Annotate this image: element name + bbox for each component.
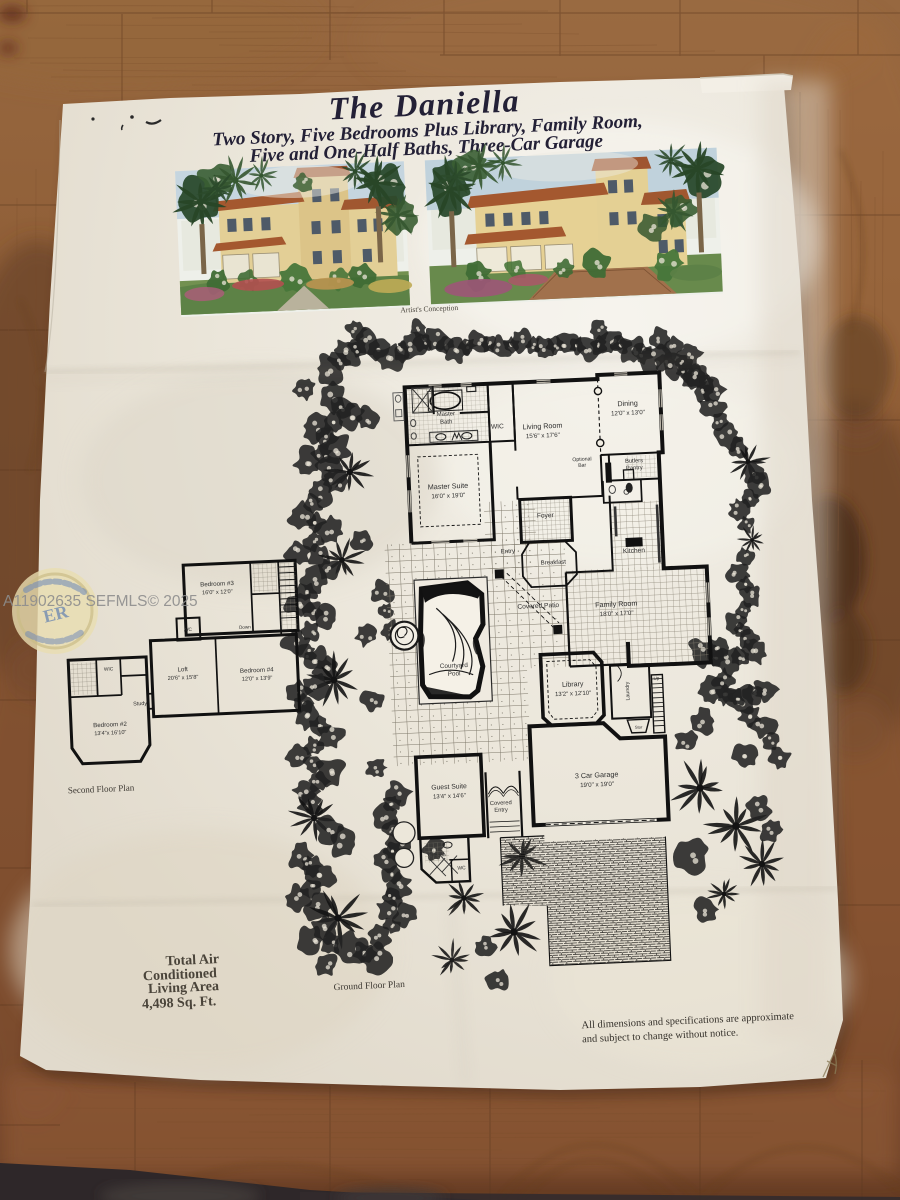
svg-text:Master Suite: Master Suite — [428, 481, 469, 492]
svg-text:Family Room: Family Room — [595, 599, 638, 610]
svg-text:Living Room: Living Room — [522, 421, 562, 432]
svg-text:Dining: Dining — [617, 398, 638, 408]
svg-text:18'0" x 17'0": 18'0" x 17'0" — [600, 610, 634, 618]
svg-text:Foyer: Foyer — [537, 512, 555, 520]
svg-text:12'0" x 13'0": 12'0" x 13'0" — [611, 409, 645, 417]
svg-text:Bedroom #2: Bedroom #2 — [93, 721, 128, 729]
svg-text:Loft: Loft — [177, 666, 188, 673]
svg-text:A11902635 SEFMLS© 2025: A11902635 SEFMLS© 2025 — [3, 593, 198, 610]
svg-text:Courtyard: Courtyard — [440, 662, 469, 670]
svg-text:Laundry: Laundry — [625, 681, 632, 700]
svg-text:WIC: WIC — [104, 666, 114, 672]
svg-text:19'0" x 19'0": 19'0" x 19'0" — [580, 781, 614, 789]
svg-text:Entry: Entry — [500, 548, 516, 556]
svg-text:Bedroom #4: Bedroom #4 — [240, 666, 275, 674]
svg-text:Bedroom #3: Bedroom #3 — [200, 580, 235, 588]
svg-text:Pantry: Pantry — [626, 465, 643, 472]
svg-text:Master: Master — [437, 411, 456, 418]
svg-text:Up: Up — [654, 676, 660, 681]
svg-text:Pool: Pool — [448, 670, 461, 678]
svg-text:A/C: A/C — [184, 627, 193, 633]
svg-text:3 Car Garage: 3 Car Garage — [575, 770, 619, 781]
svg-text:Study: Study — [133, 701, 147, 708]
svg-text:Breakfast: Breakfast — [541, 560, 567, 567]
svg-text:Stor: Stor — [635, 724, 643, 729]
svg-text:Down: Down — [239, 624, 251, 630]
svg-text:Bar: Bar — [578, 463, 587, 469]
svg-text:Library: Library — [562, 681, 584, 689]
svg-text:Covered: Covered — [490, 800, 512, 807]
svg-text:15'6" x 17'6": 15'6" x 17'6" — [526, 432, 560, 440]
svg-text:Kitchen: Kitchen — [623, 547, 646, 555]
svg-text:16'0" x 19'0": 16'0" x 19'0" — [431, 492, 465, 500]
svg-text:WC: WC — [457, 865, 466, 871]
svg-text:Entry: Entry — [494, 807, 508, 814]
svg-text:Bath: Bath — [440, 419, 453, 426]
svg-text:Cabana: Cabana — [428, 852, 446, 859]
svg-text:WIC: WIC — [491, 423, 504, 431]
svg-text:Butlers: Butlers — [625, 458, 643, 465]
